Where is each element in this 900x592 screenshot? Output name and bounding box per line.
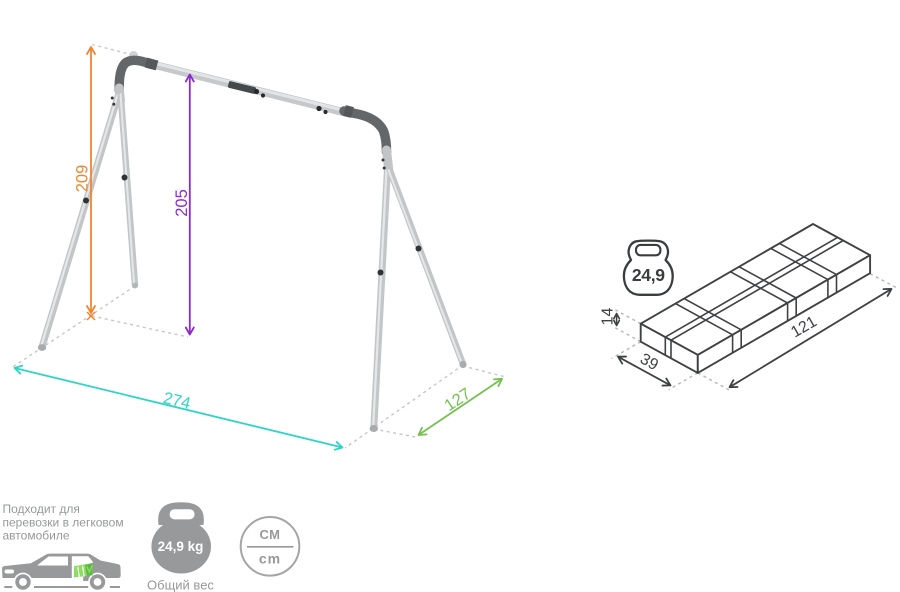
svg-text:205: 205 <box>173 189 191 217</box>
svg-text:cm: cm <box>259 550 281 566</box>
svg-text:24,9 kg: 24,9 kg <box>158 539 204 554</box>
svg-text:39: 39 <box>637 351 661 375</box>
svg-text:перевозки в легковом: перевозки в легковом <box>3 515 124 529</box>
svg-text:СМ: СМ <box>259 527 280 542</box>
svg-text:209: 209 <box>74 165 92 193</box>
svg-text:Подходит для: Подходит для <box>3 502 80 516</box>
svg-text:автомобиле: автомобиле <box>3 529 70 543</box>
svg-text:24,9: 24,9 <box>632 265 665 285</box>
svg-text:14: 14 <box>600 308 617 326</box>
svg-text:127: 127 <box>441 385 474 415</box>
svg-text:274: 274 <box>161 389 192 413</box>
svg-text:Общий вес: Общий вес <box>147 578 214 592</box>
